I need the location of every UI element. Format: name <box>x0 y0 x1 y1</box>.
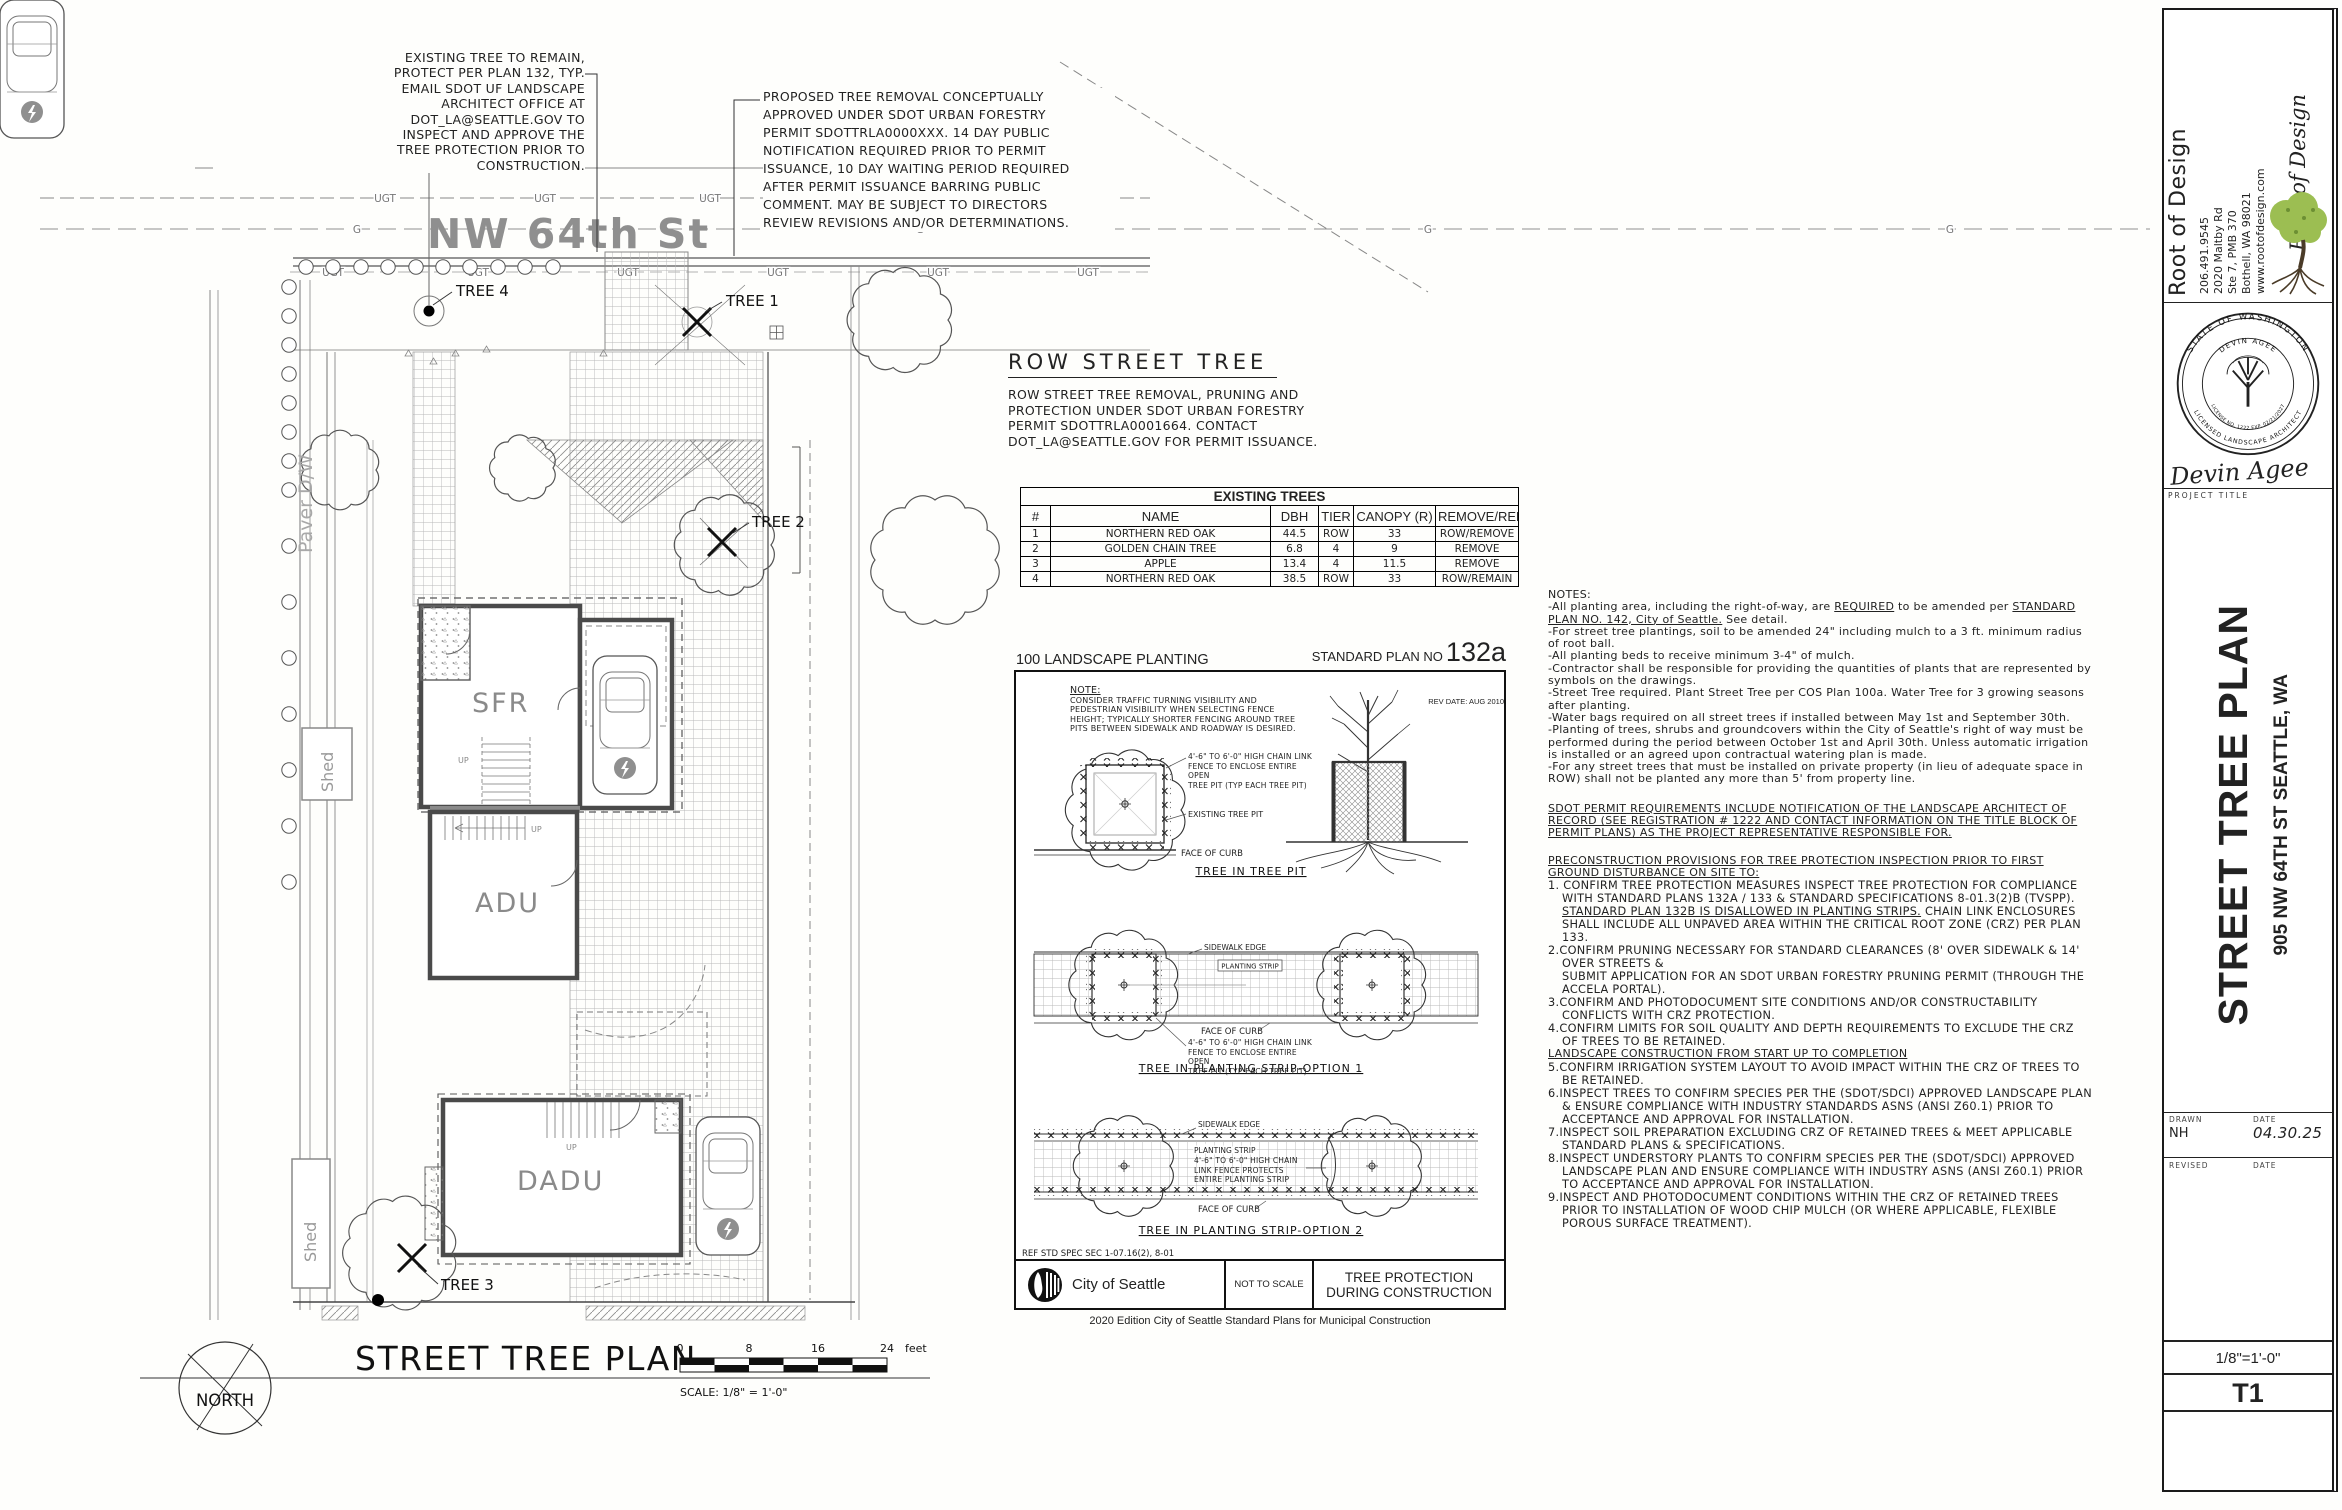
row-street-tree-heading: ROW STREET TREE <box>1008 350 1277 378</box>
architect-signature: Devin Agee <box>2169 453 2309 491</box>
existing-trees-table: EXISTING TREES # NAME DBH TIER CANOPY (R… <box>1020 487 1519 587</box>
tree4-marker <box>424 306 435 317</box>
firm-suite: Ste 7, PMB 370 <box>2226 24 2239 294</box>
plan-title: STREET TREE PLAN <box>355 1339 697 1378</box>
provisions-list-1: 1. CONFIRM TREE PROTECTION MEASURES INSP… <box>1548 879 2093 1048</box>
sfr-label: SFR <box>472 688 529 719</box>
svg-text:LICENSE NO. 1222 EXP. 02/21/2: LICENSE NO. 1222 EXP. 02/21/2027 <box>2209 403 2286 431</box>
table-row: 4NORTHERN RED OAK38.5ROW33ROW/REMAIN <box>1021 572 1519 587</box>
firm-city: Bothell, WA 98021 <box>2240 24 2253 294</box>
list-item: -Street Tree required. Plant Street Tree… <box>1548 687 2093 712</box>
list-item: 9.INSPECT AND PHOTODOCUMENT CONDITIONS W… <box>1548 1191 2093 1230</box>
fence-note-d2: 4'-6" TO 6'-0" HIGH CHAIN LINK FENCE TO … <box>1188 1038 1318 1076</box>
tree4-label: TREE 4 <box>455 282 509 300</box>
dadu-label: DADU <box>517 1166 604 1197</box>
shed-label: Shed <box>318 752 337 792</box>
table-row: 2GOLDEN CHAIN TREE6.849REMOVE <box>1021 542 1519 557</box>
adu-label: ADU <box>475 888 540 919</box>
list-item: -Contractor shall be responsible for pro… <box>1548 663 2093 688</box>
std-plan-footer: City of Seattle NOT TO SCALE TREE PROTEC… <box>1016 1259 1504 1308</box>
list-item: -For any street trees that must be insta… <box>1548 761 2093 786</box>
list-item: 1. CONFIRM TREE PROTECTION MEASURES INSP… <box>1548 879 2093 944</box>
sidewalk-edge-label2: SIDEWALK EDGE <box>1198 1120 1260 1129</box>
list-item: -All planting area, including the right-… <box>1548 601 2093 626</box>
list-item: 2.CONFIRM PRUNING NECESSARY FOR STANDARD… <box>1548 944 2093 996</box>
sheet-scale: 1/8"=1'-0" <box>2164 1340 2332 1375</box>
project-title-section: PROJECT TITLE STREET TREE PLAN 905 NW 64… <box>2164 488 2332 1113</box>
drawn-date-row: DRAWN NH DATE 04.30.25 <box>2164 1112 2332 1157</box>
agency-label: City of Seattle <box>1072 1276 1165 1293</box>
paver-dw-label: Paver D/W <box>295 454 317 553</box>
scale-unit: feet <box>905 1342 927 1355</box>
svg-text:G: G <box>353 224 361 236</box>
fence-note-d3: 4'-6" TO 6'-0" HIGH CHAIN LINK FENCE PRO… <box>1194 1156 1304 1185</box>
shed2-label: Shed <box>301 1222 320 1262</box>
drawn-value: NH <box>2169 1126 2243 1141</box>
planting-strip-label: PLANTING STRIP <box>1221 963 1278 971</box>
existing-tree-pit-label: EXISTING TREE PIT <box>1188 810 1263 819</box>
row-street-tree-section: ROW STREET TREE ROW STREET TREE REMOVAL,… <box>1008 350 1568 449</box>
list-item: 3.CONFIRM AND PHOTODOCUMENT SITE CONDITI… <box>1548 996 2093 1022</box>
detail1-title: TREE IN TREE PIT <box>1194 865 1306 878</box>
stamp-tree-glyph <box>2227 356 2269 407</box>
sheet-number: T1 <box>2164 1373 2332 1412</box>
svg-text:8: 8 <box>746 1342 753 1355</box>
proposed-removal-note: PROPOSED TREE REMOVAL CONCEPTUALLY APPRO… <box>763 88 1115 232</box>
face-of-curb-label2: FACE OF CURB <box>1201 1027 1263 1037</box>
detail-planting-strip-option2: SIDEWALK EDGE PLANTING STRIP <box>1022 1116 1478 1259</box>
row-street-tree-body: ROW STREET TREE REMOVAL, PRUNING AND PRO… <box>1008 387 1568 449</box>
list-item: 5.CONFIRM IRRIGATION SYSTEM LAYOUT TO AV… <box>1548 1061 2093 1087</box>
north-label: NORTH <box>196 1391 254 1410</box>
svg-text:UGT: UGT <box>374 193 396 205</box>
std-plan-left-header: 100 LANDSCAPE PLANTING <box>1016 652 1209 668</box>
planting-strip-label2: PLANTING STRIP <box>1194 1146 1256 1155</box>
title-block: Root of Design 206.491.9545 2020 Maltby … <box>2162 8 2338 1492</box>
svg-text:UP: UP <box>458 756 469 765</box>
empty-box <box>2164 1410 2332 1490</box>
landscape-architect-stamp: STATE OF WASHINGTON LICENSED LANDSCAPE A… <box>2172 306 2324 458</box>
face-of-curb-label: FACE OF CURB <box>1181 849 1243 859</box>
list-item: 7.INSPECT SOIL PREPARATION EXCLUDING CRZ… <box>1548 1126 2093 1152</box>
revised-row: REVISED DATE <box>2164 1157 2332 1341</box>
street-name-label: NW 64th St <box>427 210 710 258</box>
tree2-label: TREE 2 <box>751 513 805 531</box>
revised-date-label: DATE <box>2253 1161 2327 1170</box>
svg-text:DEVIN AGEE: DEVIN AGEE <box>2217 336 2279 355</box>
tree3-marker <box>398 1244 426 1272</box>
provisions-list-2: 5.CONFIRM IRRIGATION SYSTEM LAYOUT TO AV… <box>1548 1061 2093 1230</box>
date-value: 04.30.25 <box>2253 1124 2327 1142</box>
svg-text:G: G <box>1424 224 1432 236</box>
svg-text:16: 16 <box>811 1342 825 1355</box>
std-plan-note-body: CONSIDER TRAFFIC TURNING VISIBILITY AND … <box>1070 696 1305 734</box>
notes-list: -All planting area, including the right-… <box>1548 601 2093 785</box>
std-plan-note: NOTE: CONSIDER TRAFFIC TURNING VISIBILIT… <box>1070 686 1305 734</box>
ref-spec-note: REF STD SPEC SEC 1-07.16(2), 8-01 <box>1022 1249 1174 1259</box>
permit-requirements-para: SDOT PERMIT REQUIREMENTS INCLUDE NOTIFIC… <box>1548 803 2093 840</box>
list-item: -All planting beds to receive minimum 3-… <box>1548 650 2093 662</box>
svg-text:UGT: UGT <box>699 193 721 205</box>
firm-street: 2020 Maltby Rd <box>2212 24 2225 294</box>
svg-text:0: 0 <box>677 1342 684 1355</box>
list-item: -For street tree plantings, soil to be a… <box>1548 626 2093 651</box>
table-row: 1NORTHERN RED OAK44.5ROW33ROW/REMOVE <box>1021 527 1519 542</box>
scale-text: SCALE: 1/8" = 1'-0" <box>680 1386 788 1399</box>
std-plan-border-box: REV DATE: AUG 2010 <box>1014 670 1506 1310</box>
firm-name: Root of Design <box>2166 20 2191 296</box>
std-plan-right-header: STANDARD PLAN NO132a <box>1312 637 1506 668</box>
fence-note-d1: 4'-6" TO 6'-0" HIGH CHAIN LINK FENCE TO … <box>1188 752 1313 790</box>
svg-text:UP: UP <box>566 1143 577 1152</box>
svg-text:G: G <box>1946 224 1954 236</box>
std-plan-sheet-title: TREE PROTECTION DURING CONSTRUCTION <box>1314 1261 1504 1308</box>
svg-text:UGT: UGT <box>534 193 556 205</box>
drawn-label: DRAWN <box>2169 1115 2243 1124</box>
table-title: EXISTING TREES <box>1021 488 1519 506</box>
detail3-title: TREE IN PLANTING STRIP-OPTION 2 <box>1138 1224 1364 1237</box>
existing-tree-note: EXISTING TREE TO REMAIN, PROTECT PER PLA… <box>213 50 585 173</box>
firm-section: Root of Design 206.491.9545 2020 Maltby … <box>2164 10 2332 303</box>
svg-text:UGT: UGT <box>1077 267 1099 279</box>
tree1-label: TREE 1 <box>725 292 779 310</box>
project-title-label: PROJECT TITLE <box>2168 491 2249 500</box>
notes-section: NOTES: -All planting area, including the… <box>1548 589 2093 1230</box>
plan-sheet: UGT UGT UGT UGT UGT G G G G UGT UGT UGT … <box>0 0 2342 1510</box>
list-item: 8.INSPECT UNDERSTORY PLANTS TO CONFIRM S… <box>1548 1152 2093 1191</box>
date-label: DATE <box>2253 1115 2327 1124</box>
project-address: 905 NW 64TH ST SEATTLE, WA <box>2271 674 2293 956</box>
project-title: STREET TREE PLAN <box>2210 604 2257 1025</box>
std-plan-note-heading: NOTE: <box>1070 686 1305 696</box>
svg-text:UP: UP <box>531 825 542 834</box>
stamp-section: STATE OF WASHINGTON LICENSED LANDSCAPE A… <box>2164 302 2332 489</box>
list-item: -Planting of trees, shrubs and groundcov… <box>1548 724 2093 761</box>
standard-plan-132a-panel: 100 LANDSCAPE PLANTING STANDARD PLAN NO1… <box>1014 646 1506 1327</box>
svg-text:UGT: UGT <box>767 267 789 279</box>
tree3-label: TREE 3 <box>440 1276 494 1294</box>
city-of-seattle-logo-icon <box>1026 1266 1064 1304</box>
not-to-scale-label: NOT TO SCALE <box>1224 1261 1314 1308</box>
std-plan-caption: 2020 Edition City of Seattle Standard Pl… <box>1014 1315 1506 1327</box>
sfr-porch <box>421 606 470 680</box>
svg-text:24: 24 <box>880 1342 894 1355</box>
firm-phone: 206.491.9545 <box>2198 24 2211 294</box>
revised-label: REVISED <box>2169 1161 2243 1170</box>
list-item: 6.INSPECT TREES TO CONFIRM SPECIES PER T… <box>1548 1087 2093 1126</box>
landscape-construction-heading: LANDSCAPE CONSTRUCTION FROM START UP TO … <box>1548 1048 2093 1060</box>
sidewalk-edge-label: SIDEWALK EDGE <box>1204 943 1266 952</box>
table-row: 3APPLE13.4411.5REMOVE <box>1021 557 1519 572</box>
root-of-design-tree-icon <box>2258 188 2330 298</box>
face-of-curb-label3: FACE OF CURB <box>1198 1205 1260 1215</box>
table-header-row: # NAME DBH TIER CANOPY (R) REMOVE/REMAIN <box>1021 506 1519 527</box>
scale-bar: 0 8 16 24 feet SCALE: 1/8" = 1'-0" <box>677 1342 928 1399</box>
list-item: 4.CONFIRM LIMITS FOR SOIL QUALITY AND DE… <box>1548 1022 2093 1048</box>
svg-text:STATE OF WASHINGTON: STATE OF WASHINGTON <box>2185 312 2311 354</box>
preconstruction-heading: PRECONSTRUCTION PROVISIONS FOR TREE PROT… <box>1548 855 2093 880</box>
